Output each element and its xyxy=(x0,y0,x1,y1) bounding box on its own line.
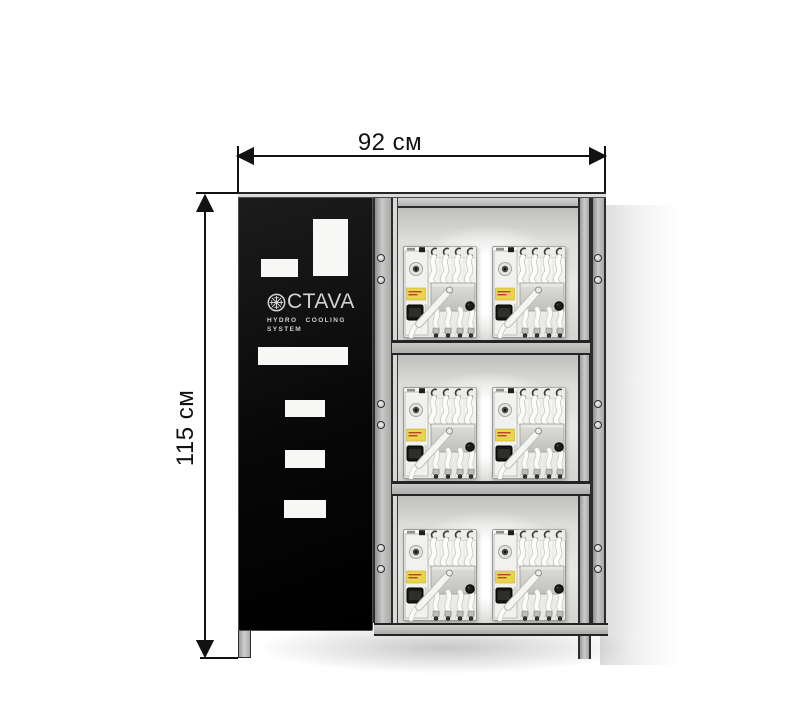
arrowhead-left-icon xyxy=(238,149,253,164)
arrowhead-right-icon xyxy=(590,149,605,164)
rack-left-post xyxy=(373,198,393,623)
door-vent xyxy=(284,500,326,518)
brand-tagline-line1: HYDRO COOLING xyxy=(267,317,357,324)
brand-logo-text: CTAVA xyxy=(287,290,355,314)
rack-bay-bottom xyxy=(397,495,579,623)
rack-shelf xyxy=(392,481,590,496)
cabinet-shadow-bottom xyxy=(225,630,665,710)
brand-logo: CTAVA HYDRO COOLING SYSTEM xyxy=(267,290,357,333)
screw-hole xyxy=(377,544,385,552)
cabinet-door: CTAVA HYDRO COOLING SYSTEM xyxy=(238,197,373,631)
rack-bay-top xyxy=(397,208,579,340)
rack-shelf xyxy=(392,340,590,355)
screw-hole xyxy=(594,565,602,573)
cooling-unit-image xyxy=(403,246,477,338)
rack-left-post-lip xyxy=(393,198,398,623)
rack-top-rail xyxy=(373,198,606,208)
cooling-unit-image xyxy=(492,387,566,479)
cooling-unit-image xyxy=(403,387,477,479)
screw-hole xyxy=(377,254,385,262)
rack-bay-middle xyxy=(397,355,579,481)
diagram-canvas: CTAVA HYDRO COOLING SYSTEM 92 см 115 см xyxy=(0,0,807,727)
height-dimension-label: 115 см xyxy=(172,378,200,478)
door-vent xyxy=(258,347,348,365)
door-vent xyxy=(285,450,325,468)
rack-right-inner-rail xyxy=(578,198,591,659)
screw-hole xyxy=(594,276,602,284)
screw-hole xyxy=(594,254,602,262)
screw-hole xyxy=(377,400,385,408)
screw-hole xyxy=(377,565,385,573)
arrowhead-down-icon xyxy=(198,641,213,656)
screw-hole xyxy=(594,421,602,429)
screw-hole xyxy=(377,421,385,429)
brand-tagline-line2: SYSTEM xyxy=(267,326,357,333)
screw-hole xyxy=(594,544,602,552)
screw-hole xyxy=(594,400,602,408)
width-dimension-label: 92 см xyxy=(330,129,450,157)
cooling-unit-image xyxy=(492,246,566,338)
door-vent xyxy=(313,219,348,276)
door-vent xyxy=(285,400,325,417)
cooling-unit-image xyxy=(492,529,566,621)
rack-bottom-rail xyxy=(374,623,608,636)
arrowhead-up-icon xyxy=(198,196,213,211)
screw-hole xyxy=(377,276,385,284)
cabinet-leg xyxy=(238,630,251,658)
cabinet-shadow-right xyxy=(600,205,695,665)
cooling-unit-image xyxy=(403,529,477,621)
door-vent xyxy=(261,259,298,277)
snowflake-icon xyxy=(267,293,286,312)
